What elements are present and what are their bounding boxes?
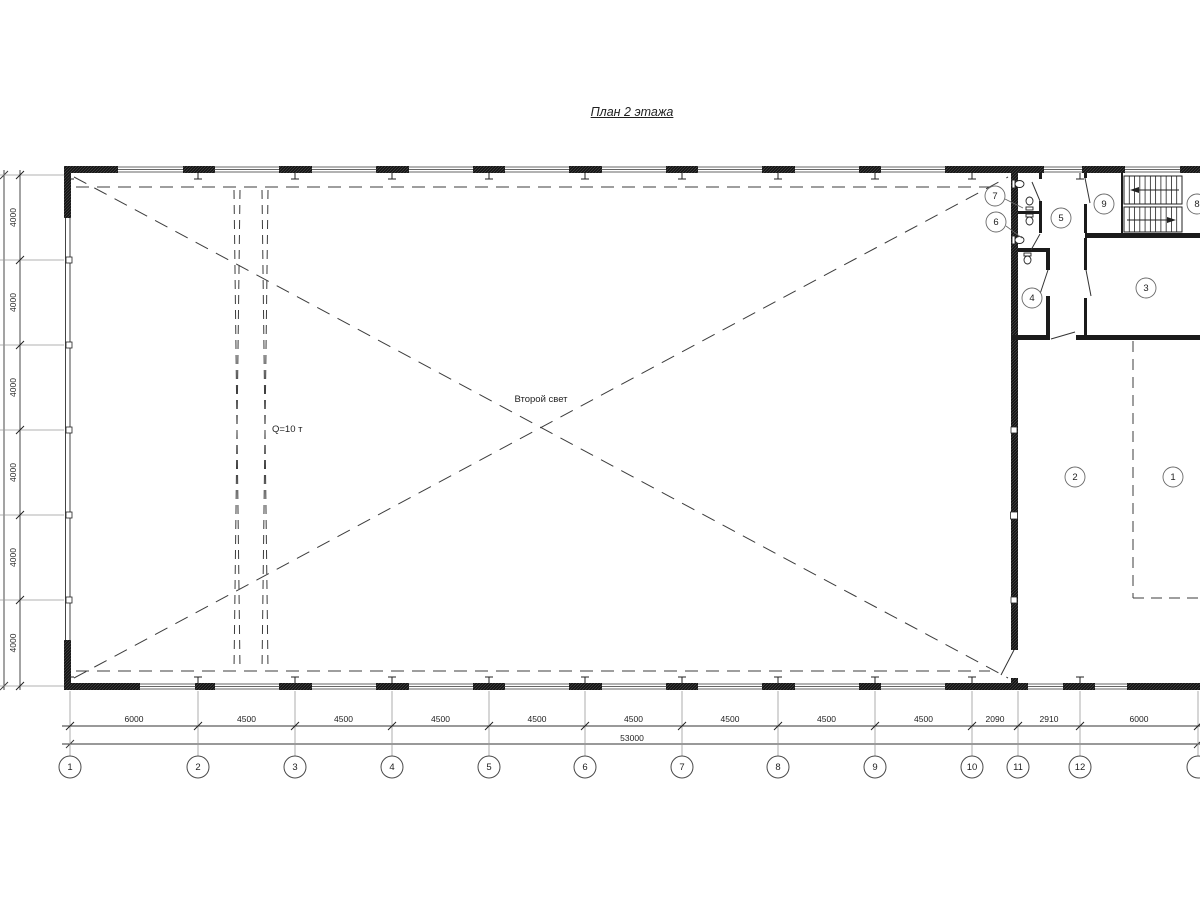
dimension-label: 2910 [1040, 714, 1059, 724]
axis-number: 10 [967, 762, 978, 773]
second-light-opening [74, 177, 1008, 678]
crane-runway-lines [234, 190, 268, 670]
room-number: 8 [1194, 199, 1199, 210]
axis-number: 12 [1075, 762, 1086, 773]
room-number: 3 [1143, 283, 1148, 294]
dimension-label: 4500 [431, 714, 450, 724]
dimension-label: 4000 [8, 293, 18, 312]
axis-number: 5 [486, 762, 491, 773]
axis-number: 3 [292, 762, 297, 773]
room-number: 2 [1072, 472, 1077, 483]
axis-number: 8 [775, 762, 780, 773]
room-number: 4 [1029, 293, 1034, 304]
axis-bubble [1187, 756, 1200, 778]
dimension-label: 4500 [721, 714, 740, 724]
dimension-label: 4500 [237, 714, 256, 724]
dimension-label: 2090 [986, 714, 1005, 724]
axis-number: 1 [67, 762, 72, 773]
second-light-label: Второй свет [514, 394, 567, 405]
dimension-label: 4000 [8, 548, 18, 567]
dimension-label: 4500 [914, 714, 933, 724]
axis-number: 4 [389, 762, 394, 773]
dimension-label: 4500 [624, 714, 643, 724]
total-dimension-label: 53000 [620, 733, 644, 743]
floor-plan-drawing: 1234567891011126000450045004500450045004… [0, 0, 1200, 900]
dimension-label: 4500 [528, 714, 547, 724]
axis-number: 9 [872, 762, 877, 773]
dimension-label: 4000 [8, 208, 18, 227]
axis-number: 2 [195, 762, 200, 773]
room-number: 9 [1101, 199, 1106, 210]
room-number: 1 [1170, 472, 1175, 483]
axis-number: 7 [679, 762, 684, 773]
dimension-label: 4500 [334, 714, 353, 724]
axis-number: 11 [1013, 762, 1023, 773]
floor-plan-sheet: 1234567891011126000450045004500450045004… [0, 0, 1200, 900]
room-number: 6 [993, 217, 998, 228]
crane-capacity-label: Q=10 т [272, 424, 303, 435]
room-number: 5 [1058, 213, 1063, 224]
dimension-label: 4000 [8, 633, 18, 652]
axis-number: 6 [582, 762, 587, 773]
dimension-label: 4500 [817, 714, 836, 724]
dimension-label: 6000 [1130, 714, 1149, 724]
staircase [1124, 176, 1182, 232]
drawing-title: План 2 этажа [591, 105, 674, 119]
column-marks [66, 173, 1084, 683]
wall-column-squares [66, 257, 1018, 603]
room-number: 7 [992, 191, 997, 202]
dimension-label: 6000 [125, 714, 144, 724]
dimension-label: 4000 [8, 378, 18, 397]
dimension-label: 4000 [8, 463, 18, 482]
